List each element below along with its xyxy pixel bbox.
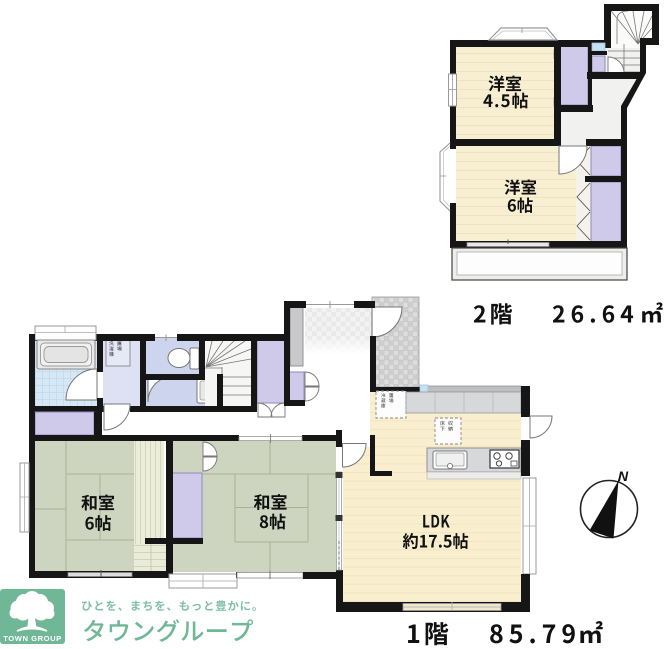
svg-text:TOWN GROUP: TOWN GROUP [3,634,62,643]
svg-text:N: N [618,468,629,484]
